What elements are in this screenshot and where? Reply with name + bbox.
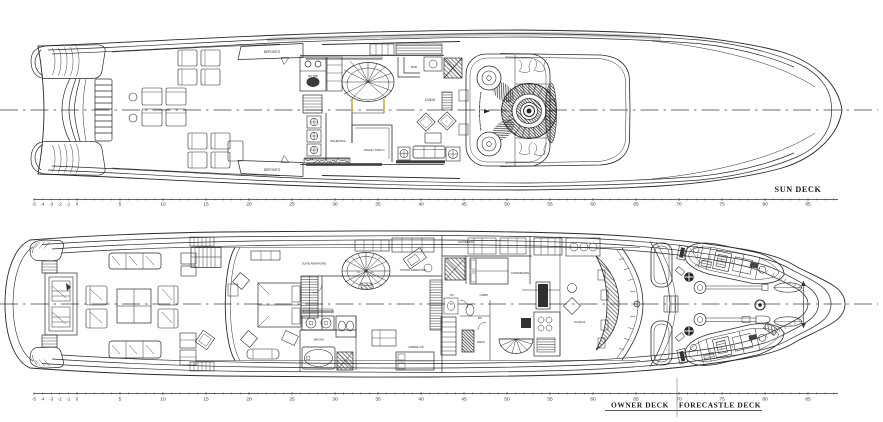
svg-text:-5: -5 — [32, 397, 36, 402]
svg-text:20: 20 — [246, 397, 252, 403]
svg-text:-4: -4 — [41, 397, 45, 402]
svg-text:WC: WC — [478, 317, 482, 320]
svg-text:85: 85 — [805, 397, 811, 403]
svg-text:SUITE ARMATORE: SUITE ARMATORE — [302, 262, 327, 266]
svg-text:55: 55 — [547, 397, 553, 403]
svg-text:BAR: BAR — [411, 65, 417, 69]
svg-text:75: 75 — [719, 397, 725, 403]
svg-text:COMANDANTE: COMANDANTE — [511, 271, 530, 275]
svg-text:-3: -3 — [49, 397, 53, 402]
svg-text:80: 80 — [762, 397, 768, 403]
svg-text:75: 75 — [719, 202, 725, 208]
svg-text:50: 50 — [504, 397, 510, 403]
svg-text:-1: -1 — [67, 397, 71, 402]
svg-text:10: 10 — [160, 202, 166, 208]
svg-text:15: 15 — [203, 397, 209, 403]
svg-text:70: 70 — [676, 202, 682, 208]
svg-text:PLANCIA: PLANCIA — [574, 320, 585, 324]
svg-text:60: 60 — [590, 202, 596, 208]
svg-text:25: 25 — [289, 202, 295, 208]
svg-text:55: 55 — [547, 202, 553, 208]
svg-text:BAGNO: BAGNO — [314, 338, 325, 342]
svg-text:-5: -5 — [32, 202, 36, 207]
svg-text:35: 35 — [375, 397, 381, 403]
svg-text:20: 20 — [246, 202, 252, 208]
svg-text:25: 25 — [289, 397, 295, 403]
svg-text:STUDIO ARMATORE: STUDIO ARMATORE — [400, 268, 427, 272]
svg-text:-2: -2 — [58, 202, 62, 207]
svg-text:5: 5 — [119, 202, 122, 208]
svg-text:65: 65 — [633, 202, 639, 208]
svg-text:5: 5 — [119, 397, 122, 403]
svg-text:OWNER DECK: OWNER DECK — [611, 401, 669, 410]
svg-text:80: 80 — [762, 202, 768, 208]
svg-text:CABINA VIP: CABINA VIP — [408, 345, 424, 349]
svg-text:SICUREZZA: SICUREZZA — [458, 240, 474, 244]
svg-text:60: 60 — [590, 397, 596, 403]
svg-text:10: 10 — [160, 397, 166, 403]
svg-text:-3: -3 — [49, 202, 53, 207]
svg-text:85: 85 — [805, 202, 811, 208]
svg-text:SAGNO TURCO: SAGNO TURCO — [364, 148, 386, 152]
svg-text:45: 45 — [461, 202, 467, 208]
svg-text:-2: -2 — [58, 397, 62, 402]
svg-text:DEPOSITO: DEPOSITO — [264, 168, 281, 172]
svg-text:BU: BU — [450, 294, 454, 297]
svg-text:70: 70 — [676, 397, 682, 403]
svg-text:50: 50 — [504, 202, 510, 208]
svg-text:LIVING: LIVING — [425, 98, 436, 102]
svg-text:GIU: GIU — [370, 272, 374, 274]
svg-text:DEPOSITO: DEPOSITO — [264, 50, 281, 54]
svg-text:65: 65 — [633, 397, 639, 403]
svg-text:40: 40 — [418, 202, 424, 208]
svg-text:30: 30 — [332, 397, 338, 403]
svg-text:30: 30 — [332, 202, 338, 208]
svg-text:LOBBY: LOBBY — [480, 293, 489, 297]
svg-text:WC TRIP: WC TRIP — [308, 75, 318, 78]
svg-text:SU: SU — [357, 272, 360, 274]
svg-text:RADIO: RADIO — [477, 341, 485, 344]
svg-text:15: 15 — [203, 202, 209, 208]
svg-text:45: 45 — [461, 397, 467, 403]
svg-text:SUN DECK: SUN DECK — [775, 185, 822, 194]
svg-text:35: 35 — [375, 202, 381, 208]
svg-text:40: 40 — [418, 397, 424, 403]
svg-text:PALESTRA: PALESTRA — [330, 139, 345, 143]
svg-text:-1: -1 — [67, 202, 71, 207]
svg-text:-4: -4 — [41, 202, 45, 207]
